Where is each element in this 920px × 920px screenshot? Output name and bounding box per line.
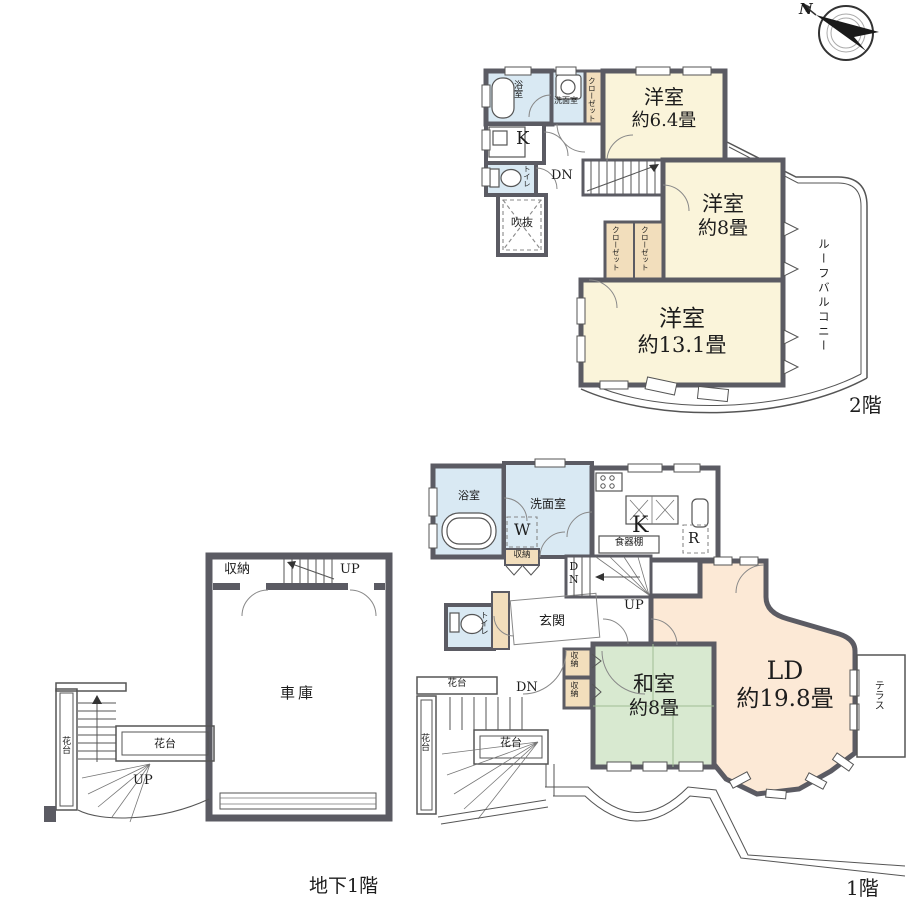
toilet-label-2f: トイレ <box>522 165 530 195</box>
floor1-title: 1階 <box>846 877 879 899</box>
living-label: LD 約19.8畳 <box>712 656 858 713</box>
bedroom-13-1-size: 約13.1畳 <box>592 333 772 358</box>
bedroom-8-name: 洋室 <box>667 192 779 217</box>
storage-small-label: 収納 <box>505 551 539 561</box>
japanese-room-label: 和室 約8畳 <box>597 672 711 719</box>
up-label-b1f: UP <box>340 563 360 578</box>
compass-icon <box>803 3 879 60</box>
bedroom-13-1-label: 洋室 約13.1畳 <box>592 306 772 358</box>
entrance-label: 玄関 <box>520 615 584 630</box>
closet-label-2f-a: クローゼット <box>587 77 595 123</box>
void-label: 吹抜 <box>501 217 543 229</box>
living-size: 約19.8畳 <box>712 686 858 713</box>
flower-top-label: 花台 <box>425 679 489 690</box>
bedroom-6-4-name: 洋室 <box>606 86 722 110</box>
bath-label-2f: 浴室 <box>512 80 522 120</box>
bedroom-6-4-label: 洋室 約6.4畳 <box>606 86 722 131</box>
dn-label-2f: DN <box>551 169 573 184</box>
japanese-room-name: 和室 <box>597 672 711 697</box>
outdoor-stairs-b1f <box>78 695 209 822</box>
compass-north-label: N <box>799 1 813 18</box>
storage-label-b1f: 収納 <box>224 563 250 578</box>
dn-label-1f: DN <box>567 560 579 592</box>
floorplan-canvas: 浴室 洗面室 クローゼット 洋室 約6.4畳 K トイレ DN 吹抜 洋室 約8… <box>0 0 920 920</box>
bath-label-1f: 浴室 <box>447 490 491 502</box>
floor2-title: 2階 <box>849 394 882 416</box>
cupboard-label: 食器棚 <box>601 538 657 549</box>
flower-mid-label: 花台 <box>486 737 536 749</box>
bathtub-icon-1f <box>442 513 496 549</box>
living-name: LD <box>712 656 858 686</box>
bedroom-8-size: 約8畳 <box>667 217 779 239</box>
outdoor-dn-label: DN <box>516 681 538 696</box>
flower-b1f-left-label: 花台 <box>60 736 70 780</box>
terrace-label: テラス <box>872 680 883 736</box>
bedroom-6-4-size: 約6.4畳 <box>606 110 722 131</box>
japanese-room-size: 約8畳 <box>597 697 711 719</box>
bedroom-8-label: 洋室 約8畳 <box>667 192 779 239</box>
up-label-1f: UP <box>624 599 644 614</box>
basement-plan <box>44 556 389 822</box>
bedroom-13-1-name: 洋室 <box>592 306 772 333</box>
storage-a-label: 収納 <box>569 651 578 676</box>
closet-label-2f-b: クローゼット <box>611 226 619 278</box>
garage-shutter <box>220 793 376 809</box>
stove-icon <box>596 473 622 491</box>
flower-left-label: 花台 <box>419 733 429 777</box>
washroom-label-2f: 洗面室 <box>546 97 586 106</box>
washer-label: W <box>514 521 530 539</box>
toilet-icon-2f <box>490 169 521 187</box>
toilet-label-1f: トイレ <box>479 611 488 645</box>
kitchen-label-1f: K <box>632 514 648 539</box>
flower-b1f-box-label: 花台 <box>140 738 190 750</box>
outdoor-up-label: UP <box>133 774 153 789</box>
bathtub-icon-2f <box>492 78 514 118</box>
garage-label: 車庫 <box>280 685 316 702</box>
kitchenette-label-2f: K <box>516 129 529 149</box>
closet-label-2f-c: クローゼット <box>640 226 648 278</box>
roof-balcony-label: ルーフバルコニー <box>817 238 830 356</box>
flower-wall-top <box>56 683 126 691</box>
washroom-label-1f: 洗面室 <box>518 498 578 511</box>
storage-b-label: 収納 <box>569 681 578 707</box>
fridge-label: R <box>688 530 699 547</box>
outdoor-stairs-1f <box>438 697 548 824</box>
sink-icon <box>692 499 708 527</box>
basement-title: 地下1階 <box>309 876 378 897</box>
